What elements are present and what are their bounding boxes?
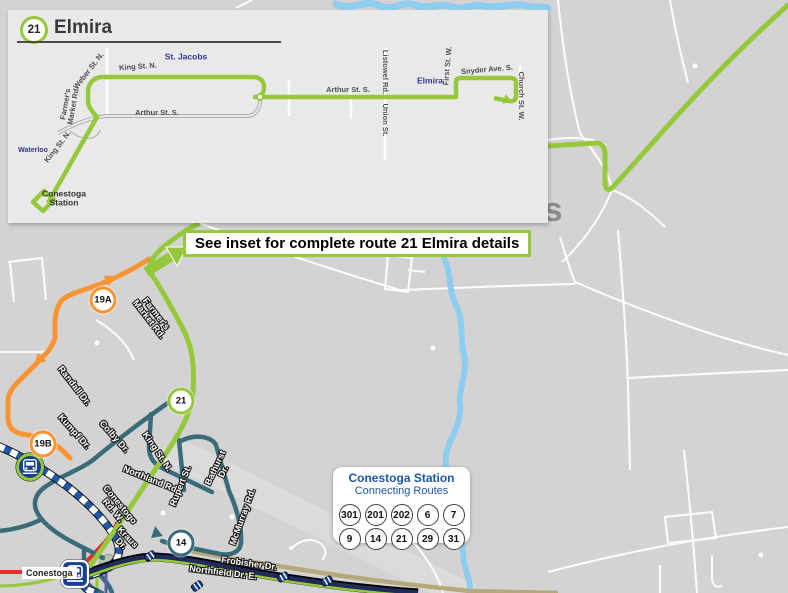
- route-circle-21: 21: [391, 528, 413, 550]
- inset-roads: [107, 48, 520, 160]
- route-circle-14: 14: [365, 528, 387, 550]
- inset-route-node: [257, 94, 263, 100]
- route-circle-31: 31: [443, 528, 465, 550]
- badge-14: 14: [168, 530, 195, 557]
- inset-label-elmira: Elmira: [417, 76, 443, 85]
- inset-label-union: Union St.: [381, 104, 389, 137]
- transit-map: St. Jacobs See inset for complete route …: [0, 0, 788, 593]
- inset-label-st-jacobs: St. Jacobs: [165, 52, 208, 61]
- badge-21: 21: [168, 388, 195, 415]
- inset-title: Elmira: [54, 17, 112, 39]
- route-circle-202: 202: [391, 504, 413, 526]
- connecting-routes-row2: 9 14 21 29 31: [333, 528, 470, 550]
- inset-label-arthur-south: Arthur St. S.: [135, 109, 179, 117]
- badge-19b: 19B: [30, 431, 57, 458]
- connecting-routes-box: Conestoga Station Connecting Routes 301 …: [333, 467, 470, 543]
- inset-label-arthur-north: Arthur St. S.: [326, 86, 370, 94]
- badge-19a: 19A: [90, 287, 117, 314]
- route-circle-29: 29: [417, 528, 439, 550]
- inset-route-21: [33, 77, 516, 211]
- route-21-inset: 21 Elmira St. Jacobs King St. N. Weber S…: [8, 10, 548, 223]
- route-circle-201: 201: [365, 504, 387, 526]
- inset-callout: See inset for complete route 21 Elmira d…: [183, 230, 531, 257]
- connecting-routes-row1: 301 201 202 6 7: [333, 504, 470, 526]
- connecting-routes-subtitle: Connecting Routes: [333, 485, 470, 497]
- route-circle-301: 301: [339, 504, 361, 526]
- connecting-routes-title: Conestoga Station: [333, 472, 470, 485]
- inset-label-listowel: Listowel Rd.: [381, 50, 389, 94]
- inset-route-badge: 21: [20, 16, 48, 44]
- route-circle-9: 9: [339, 528, 361, 550]
- route-circle-7: 7: [443, 504, 465, 526]
- route-circle-6: 6: [417, 504, 439, 526]
- inset-divider: [17, 41, 281, 43]
- inset-label-church: Church St. W.: [517, 72, 525, 121]
- inset-label-waterloo: Waterloo: [18, 147, 48, 155]
- inset-label-conestoga-station: Conestoga Station: [32, 190, 96, 209]
- conestoga-station-label: Conestoga: [22, 567, 77, 579]
- route-14-arrow: [149, 525, 163, 538]
